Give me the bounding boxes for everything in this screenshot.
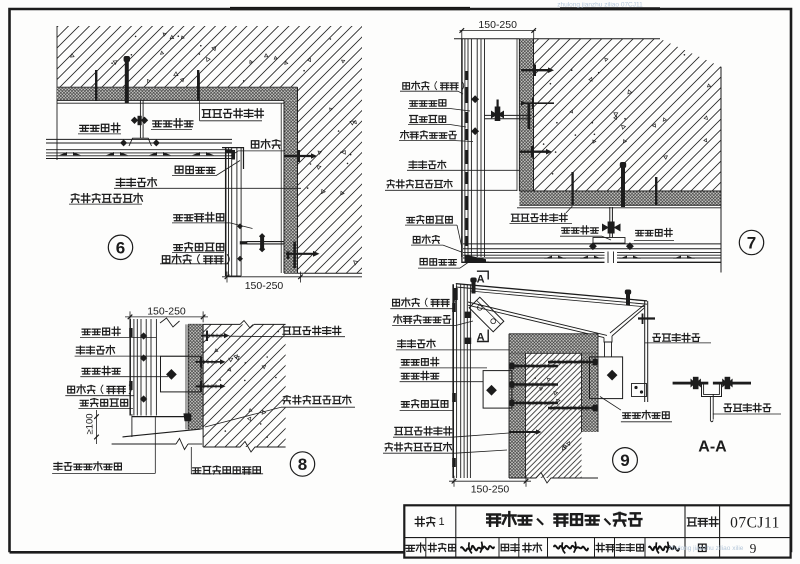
svg-text:8: 8: [298, 455, 307, 474]
svg-text:≥100: ≥100: [85, 413, 96, 434]
svg-text:6: 6: [116, 238, 125, 257]
svg-text:150-250: 150-250: [471, 483, 510, 495]
svg-text:zhulong jianzhu ziliao 07CJ11: zhulong jianzhu ziliao 07CJ11: [557, 2, 643, 9]
svg-text:150-250: 150-250: [478, 19, 517, 31]
svg-text:9: 9: [620, 451, 629, 470]
svg-text:A: A: [477, 273, 485, 285]
svg-text:1: 1: [439, 516, 445, 528]
svg-text:150-250: 150-250: [245, 280, 284, 292]
svg-text:7: 7: [747, 234, 756, 253]
svg-text:150-250: 150-250: [147, 305, 186, 317]
svg-text:A-A: A-A: [698, 439, 727, 456]
svg-text:9: 9: [750, 541, 757, 556]
svg-text:07CJ11: 07CJ11: [730, 515, 780, 532]
svg-text:zhulong jianzhu ziliao xilie: zhulong jianzhu ziliao xilie: [669, 545, 744, 552]
